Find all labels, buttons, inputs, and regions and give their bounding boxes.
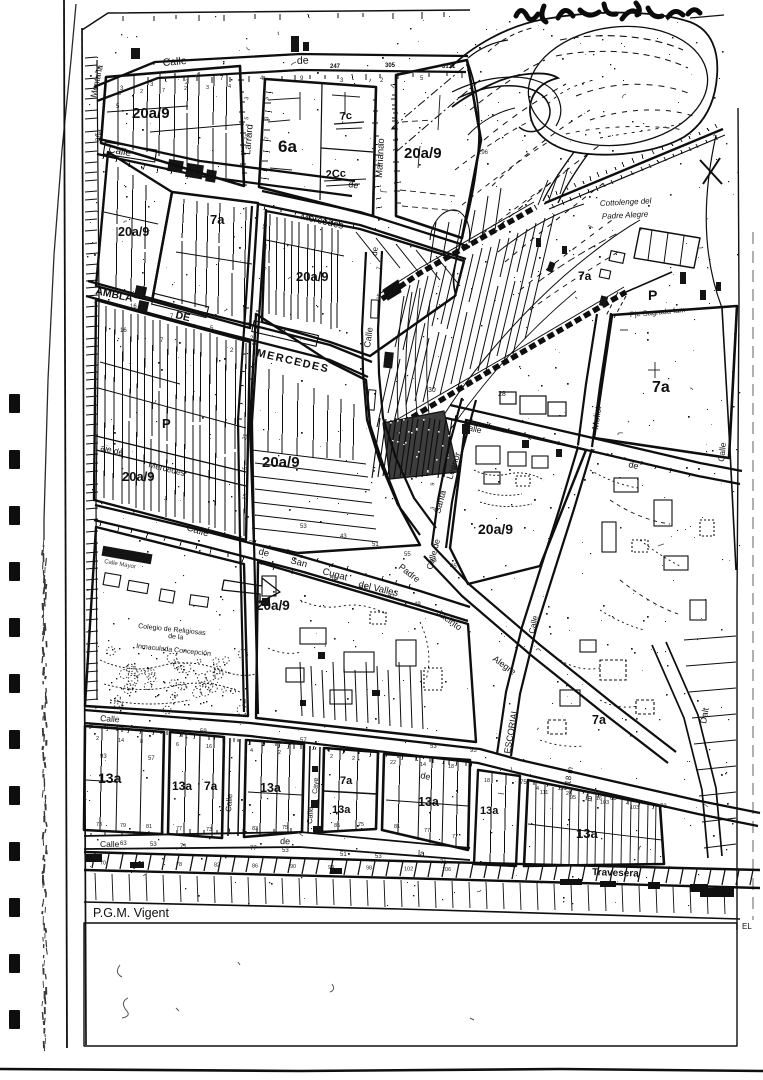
svg-text:Caye: Caye (312, 777, 320, 794)
svg-text:13a: 13a (418, 795, 440, 809)
svg-text:83: 83 (252, 826, 258, 832)
svg-text:7a: 7a (204, 779, 218, 793)
svg-text:51: 51 (360, 586, 367, 592)
svg-text:14: 14 (118, 738, 124, 744)
svg-text:63: 63 (120, 841, 127, 847)
svg-text:4: 4 (250, 748, 253, 754)
svg-text:4: 4 (536, 786, 539, 792)
svg-text:7a: 7a (340, 775, 353, 787)
svg-text:77: 77 (424, 828, 430, 834)
svg-text:24: 24 (566, 791, 572, 797)
svg-text:57: 57 (148, 756, 155, 762)
svg-text:21: 21 (244, 133, 251, 140)
svg-text:18: 18 (484, 778, 490, 784)
svg-text:22: 22 (390, 760, 396, 766)
svg-text:55: 55 (330, 576, 337, 582)
svg-text:55: 55 (404, 552, 411, 558)
svg-text:14: 14 (420, 762, 426, 768)
svg-text:247: 247 (330, 64, 341, 70)
svg-text:42: 42 (452, 466, 459, 472)
svg-text:53: 53 (430, 558, 437, 564)
svg-text:15: 15 (242, 493, 249, 500)
svg-text:90: 90 (290, 864, 296, 870)
svg-text:51: 51 (560, 786, 567, 792)
svg-text:2: 2 (96, 736, 99, 742)
svg-text:Calle: Calle (100, 713, 120, 724)
svg-text:73: 73 (660, 804, 667, 810)
svg-text:4: 4 (228, 84, 231, 90)
svg-text:43: 43 (340, 534, 347, 540)
svg-text:102: 102 (404, 866, 413, 872)
svg-text:78: 78 (176, 862, 182, 868)
svg-text:20a/9: 20a/9 (262, 454, 300, 471)
svg-text:53: 53 (282, 848, 289, 854)
svg-text:95: 95 (470, 748, 477, 754)
svg-text:70: 70 (100, 860, 106, 866)
svg-text:Calle: Calle (100, 839, 120, 849)
svg-text:77: 77 (250, 846, 257, 852)
svg-text:18: 18 (448, 764, 454, 770)
svg-text:51: 51 (388, 594, 395, 600)
svg-text:77: 77 (452, 834, 458, 840)
svg-text:77: 77 (176, 826, 182, 832)
svg-text:53: 53 (375, 854, 382, 860)
svg-text:P: P (162, 416, 171, 431)
svg-text:6: 6 (176, 742, 179, 748)
svg-text:53: 53 (300, 524, 307, 530)
svg-text:3: 3 (206, 85, 209, 91)
svg-text:85: 85 (334, 823, 340, 829)
svg-text:Calle: Calle (162, 55, 187, 69)
svg-text:7a: 7a (210, 212, 225, 227)
svg-text:20a/9: 20a/9 (118, 225, 149, 239)
svg-text:2: 2 (184, 86, 187, 92)
svg-text:82: 82 (214, 863, 220, 869)
svg-text:94: 94 (328, 865, 334, 871)
svg-text:6a: 6a (278, 137, 297, 156)
svg-text:73: 73 (206, 827, 212, 833)
svg-text:51: 51 (340, 852, 347, 858)
svg-text:20a/9: 20a/9 (478, 521, 513, 537)
svg-text:75: 75 (520, 780, 527, 786)
svg-text:73: 73 (96, 822, 102, 828)
svg-text:71: 71 (440, 860, 447, 866)
svg-text:53: 53 (430, 744, 437, 750)
svg-text:13a: 13a (480, 805, 499, 817)
svg-text:74: 74 (138, 861, 144, 867)
svg-text:16: 16 (206, 744, 212, 750)
svg-text:79: 79 (120, 823, 126, 829)
svg-text:16: 16 (120, 328, 127, 334)
svg-text:20a/9: 20a/9 (132, 105, 170, 122)
svg-text:75: 75 (358, 822, 364, 828)
svg-text:65: 65 (610, 796, 617, 802)
svg-text:7a: 7a (652, 379, 670, 396)
svg-text:13a: 13a (332, 804, 351, 816)
svg-text:49: 49 (414, 602, 421, 608)
svg-text:103: 103 (630, 805, 639, 811)
svg-text:P.G.M. Vigent: P.G.M. Vigent (93, 906, 169, 920)
svg-text:Calle: Calle (716, 442, 728, 463)
svg-text:Calle: Calle (305, 806, 315, 824)
svg-text:20a/9: 20a/9 (296, 269, 329, 284)
svg-text:81: 81 (146, 824, 152, 830)
svg-text:106: 106 (442, 867, 451, 873)
svg-text:Calle: Calle (224, 793, 234, 812)
svg-text:de: de (420, 770, 432, 782)
svg-text:93: 93 (100, 754, 107, 760)
svg-text:20a/9: 20a/9 (256, 598, 290, 613)
svg-text:75: 75 (282, 825, 288, 831)
svg-text:2: 2 (330, 754, 333, 760)
svg-text:20a/9: 20a/9 (122, 469, 155, 484)
svg-text:53: 53 (150, 842, 157, 848)
svg-text:7: 7 (162, 88, 165, 94)
svg-text:30: 30 (428, 387, 436, 394)
svg-text:86: 86 (252, 863, 258, 869)
svg-text:P: P (648, 287, 657, 303)
svg-text:305: 305 (385, 63, 396, 69)
svg-text:4: 4 (626, 801, 629, 807)
svg-text:57: 57 (300, 738, 307, 744)
svg-text:2Cc: 2Cc (325, 168, 346, 181)
svg-text:2: 2 (352, 756, 355, 762)
svg-text:20a/9: 20a/9 (404, 145, 442, 162)
svg-text:7a: 7a (592, 713, 607, 727)
svg-text:de: de (297, 55, 309, 67)
svg-text:111: 111 (540, 790, 548, 796)
svg-text:2: 2 (278, 750, 281, 756)
svg-text:21: 21 (242, 433, 249, 440)
svg-text:EL: EL (742, 922, 752, 931)
svg-text:59: 59 (200, 729, 207, 735)
svg-text:de: de (280, 836, 290, 846)
svg-text:51: 51 (372, 542, 379, 548)
svg-text:45: 45 (450, 564, 457, 570)
svg-text:16: 16 (130, 304, 137, 310)
svg-text:81: 81 (394, 824, 400, 830)
svg-text:16: 16 (596, 796, 602, 802)
svg-text:la: la (418, 848, 425, 858)
svg-text:7c: 7c (339, 110, 352, 123)
svg-text:98: 98 (366, 866, 372, 872)
svg-text:8: 8 (140, 739, 143, 745)
svg-text:7a: 7a (578, 269, 592, 283)
svg-text:15: 15 (262, 243, 269, 250)
svg-text:15: 15 (262, 223, 269, 230)
svg-text:15: 15 (376, 293, 383, 300)
svg-text:2: 2 (140, 89, 143, 95)
